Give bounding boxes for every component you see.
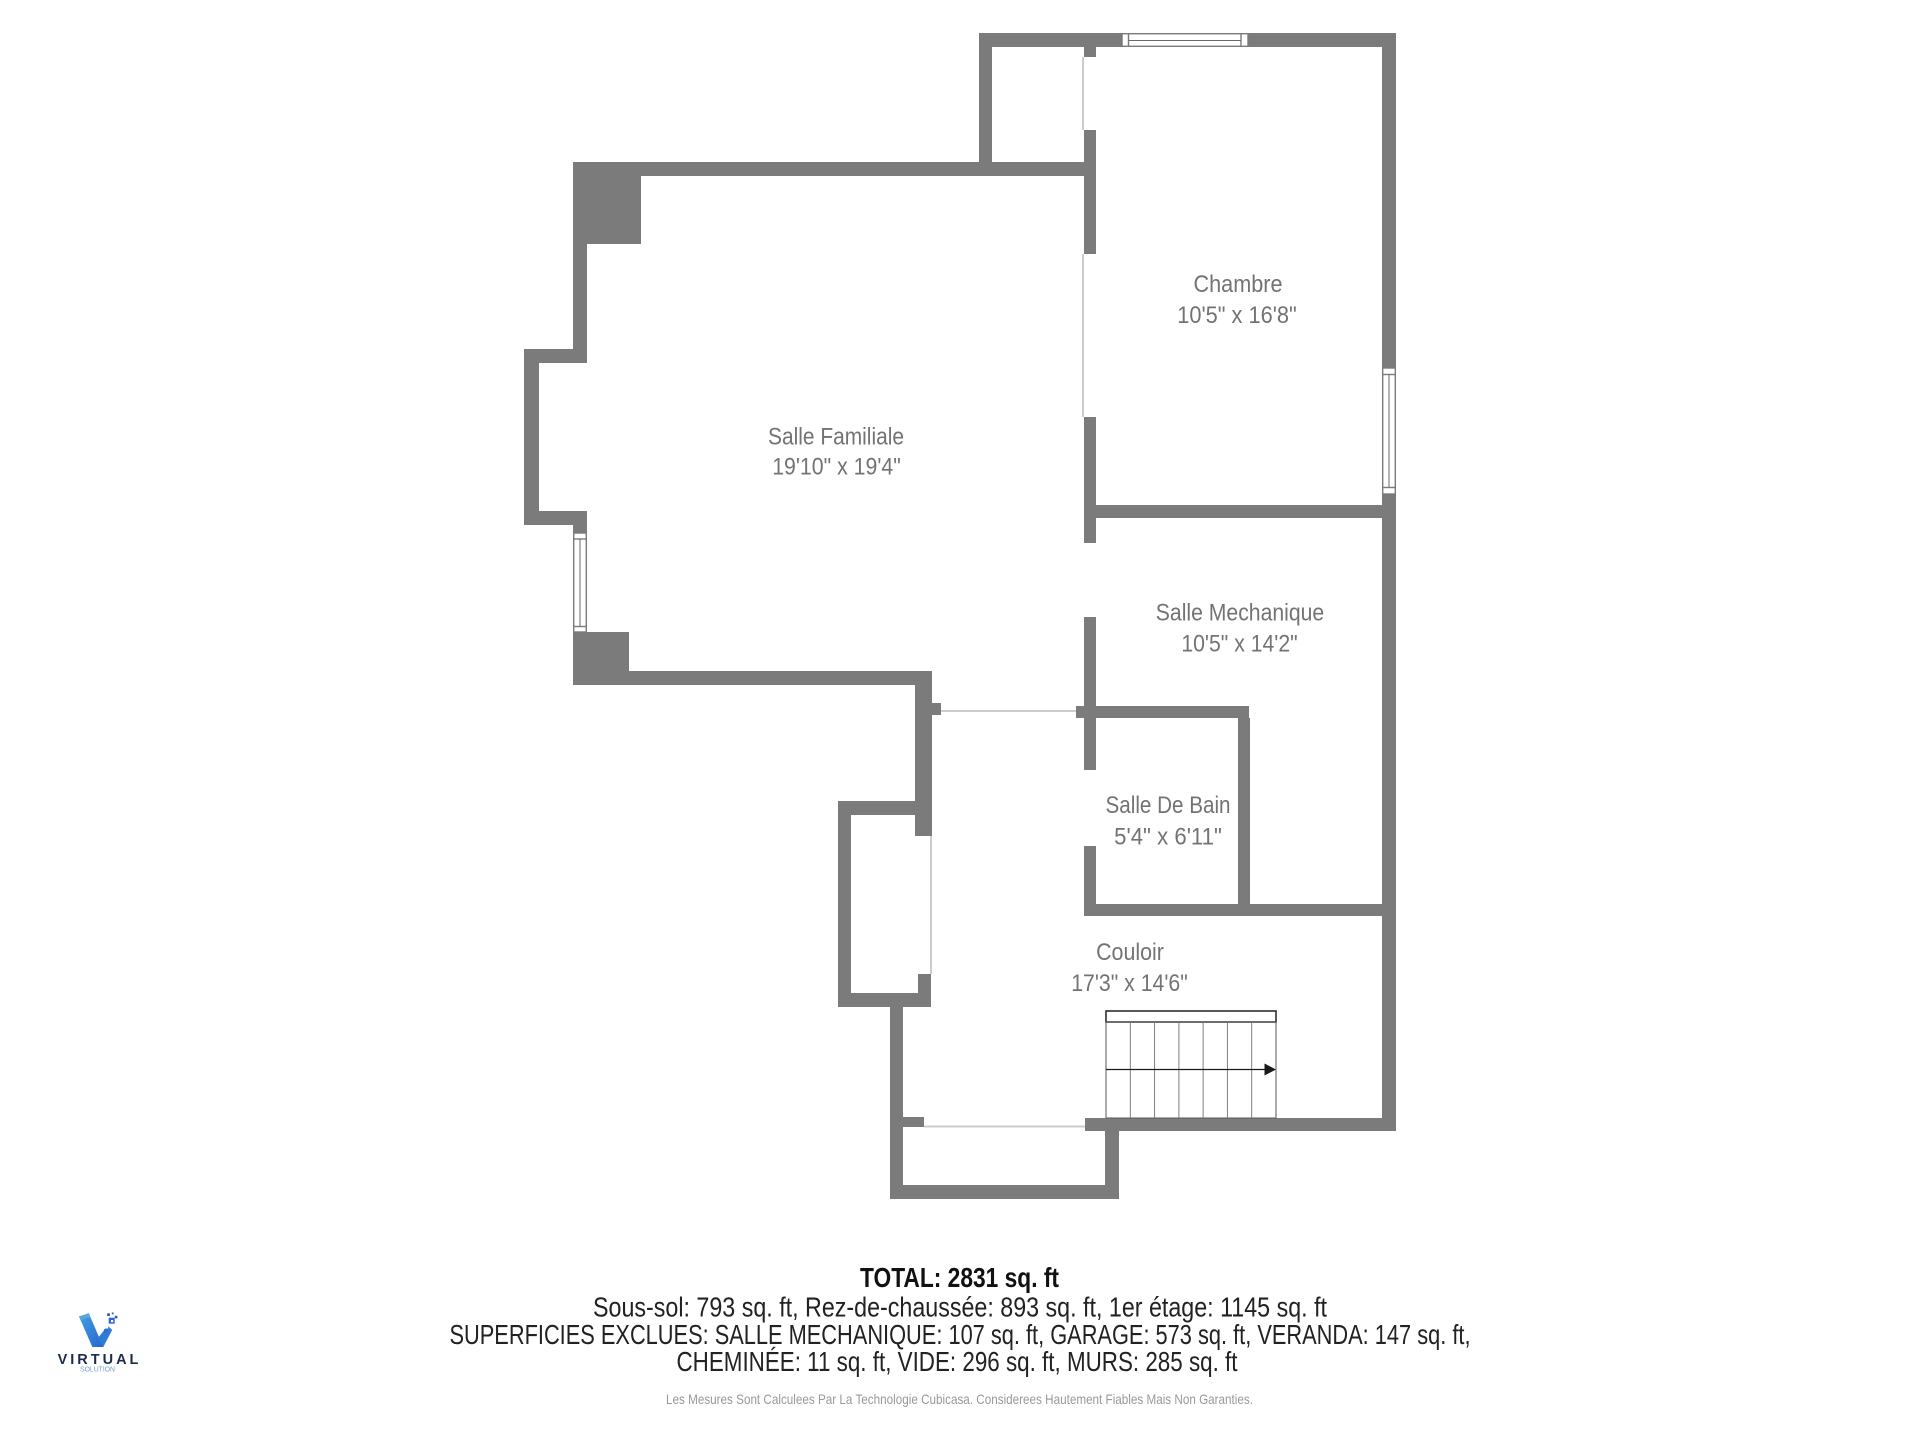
svg-text:5'4" x 6'11": 5'4" x 6'11" [1114,824,1222,851]
svg-text:19'10" x 19'4": 19'10" x 19'4" [772,454,901,481]
svg-text:CHEMINÉE: 11 sq. ft, VIDE: 296: CHEMINÉE: 11 sq. ft, VIDE: 296 sq. ft, M… [677,1346,1238,1377]
svg-text:Sous-sol: 793 sq. ft, Rez-de-c: Sous-sol: 793 sq. ft, Rez-de-chaussée: 8… [593,1292,1327,1323]
svg-text:10'5" x 14'2": 10'5" x 14'2" [1181,631,1297,658]
svg-text:10'5" x 16'8": 10'5" x 16'8" [1177,302,1297,329]
svg-text:Les Mesures Sont Calculees Par: Les Mesures Sont Calculees Par La Techno… [666,1391,1253,1407]
svg-text:Salle De Bain: Salle De Bain [1106,792,1231,819]
svg-text:Salle Familiale: Salle Familiale [768,424,904,451]
svg-text:Chambre: Chambre [1194,271,1283,298]
svg-text:Salle Mechanique: Salle Mechanique [1156,600,1324,627]
svg-text:SOLUTION: SOLUTION [80,1367,115,1374]
svg-text:TOTAL: 2831 sq. ft: TOTAL: 2831 sq. ft [860,1262,1059,1293]
svg-text:17'3" x 14'6": 17'3" x 14'6" [1071,970,1188,997]
svg-text:Couloir: Couloir [1096,939,1164,966]
